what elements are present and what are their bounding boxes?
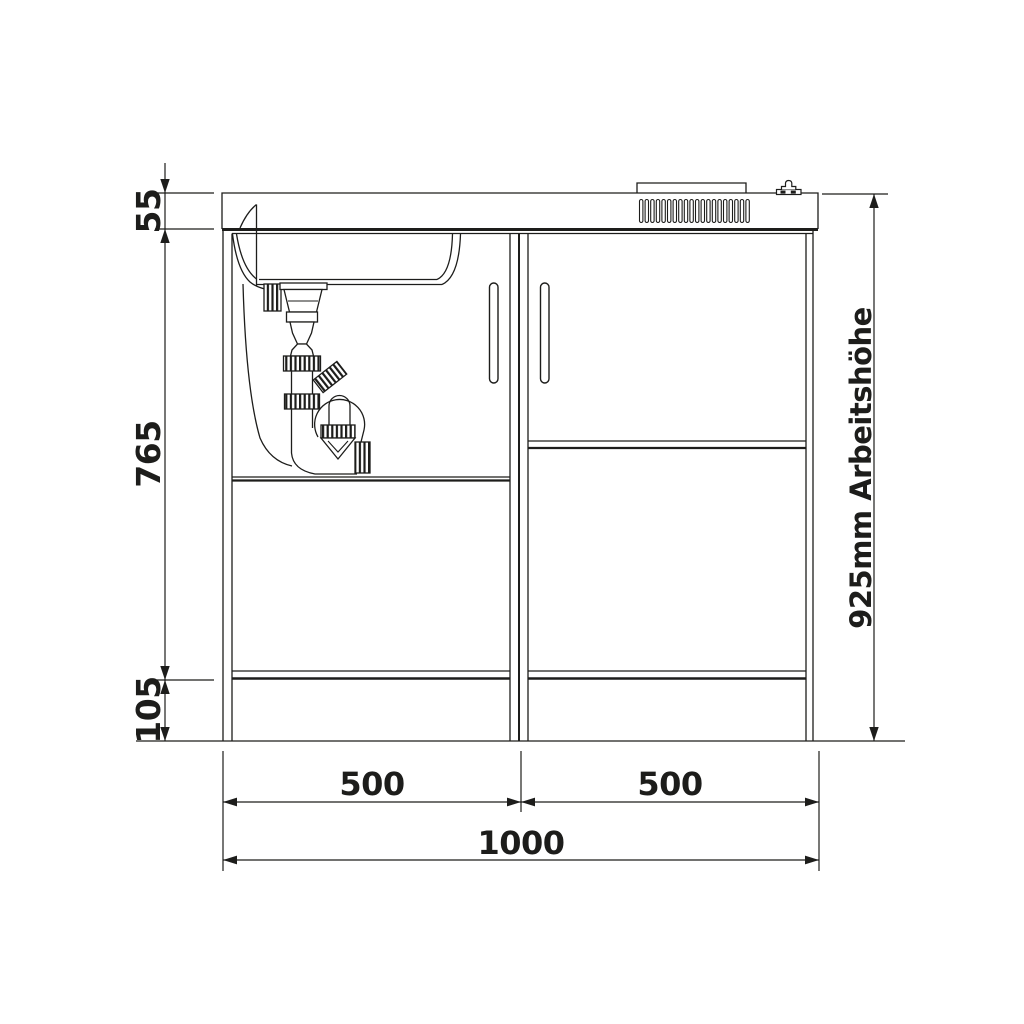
dim-label-plinth-height: 105 bbox=[129, 676, 168, 743]
arrow-925-bottom bbox=[869, 727, 878, 741]
arrow-1000-left bbox=[223, 856, 237, 865]
cooktop bbox=[637, 181, 801, 223]
drain-flange bbox=[280, 283, 327, 322]
right-door-bottom-edge bbox=[528, 671, 806, 679]
sink-rim-profile bbox=[240, 205, 257, 229]
right-door-handle bbox=[541, 283, 550, 383]
kitchenette-elevation-drawing: 55 765 105 925mm Arbeitshöhe 500 500 100… bbox=[0, 0, 1024, 1024]
right-side-wall bbox=[806, 231, 813, 741]
tailpiece bbox=[290, 322, 314, 356]
arrow-500R-left bbox=[521, 798, 535, 807]
dim-label-right-module-width: 500 bbox=[637, 765, 702, 803]
dim-label-working-height: 925mm Arbeitshöhe bbox=[844, 307, 878, 629]
arrow-500R-right bbox=[805, 798, 819, 807]
dim-label-worktop-thickness: 55 bbox=[129, 189, 168, 234]
left-cabinet-divider bbox=[232, 477, 510, 481]
sink-bowl bbox=[233, 205, 461, 290]
dim-label-left-module-width: 500 bbox=[339, 765, 404, 803]
right-cabinet-divider bbox=[528, 441, 806, 448]
dim-label-cabinet-height: 765 bbox=[129, 420, 168, 487]
arrow-1000-right bbox=[805, 856, 819, 865]
cabinet-carcass bbox=[136, 193, 905, 741]
technical-drawing-page: 55 765 105 925mm Arbeitshöhe 500 500 100… bbox=[0, 0, 1024, 1024]
trap-loop-nut bbox=[321, 425, 355, 438]
arrow-500L-left bbox=[223, 798, 237, 807]
union-nut-2 bbox=[285, 394, 320, 409]
arrow-500L-right bbox=[507, 798, 521, 807]
drain-side-nut bbox=[264, 284, 281, 311]
center-partition bbox=[510, 234, 528, 742]
vent-grille-slats bbox=[640, 200, 750, 223]
control-knob bbox=[777, 181, 802, 195]
dim-label-total-width: 1000 bbox=[477, 824, 564, 862]
trap-elbow bbox=[292, 453, 358, 474]
left-door-handle bbox=[490, 283, 499, 383]
union-nut-1 bbox=[284, 356, 321, 371]
trap-outlet-point bbox=[321, 438, 355, 459]
arrow-925-top bbox=[869, 194, 878, 208]
left-side-wall bbox=[223, 231, 232, 741]
cooktop-plate bbox=[637, 183, 746, 193]
trap-right-nut bbox=[355, 442, 370, 473]
left-door-bottom-edge bbox=[232, 671, 510, 679]
sink-trap bbox=[243, 283, 370, 474]
